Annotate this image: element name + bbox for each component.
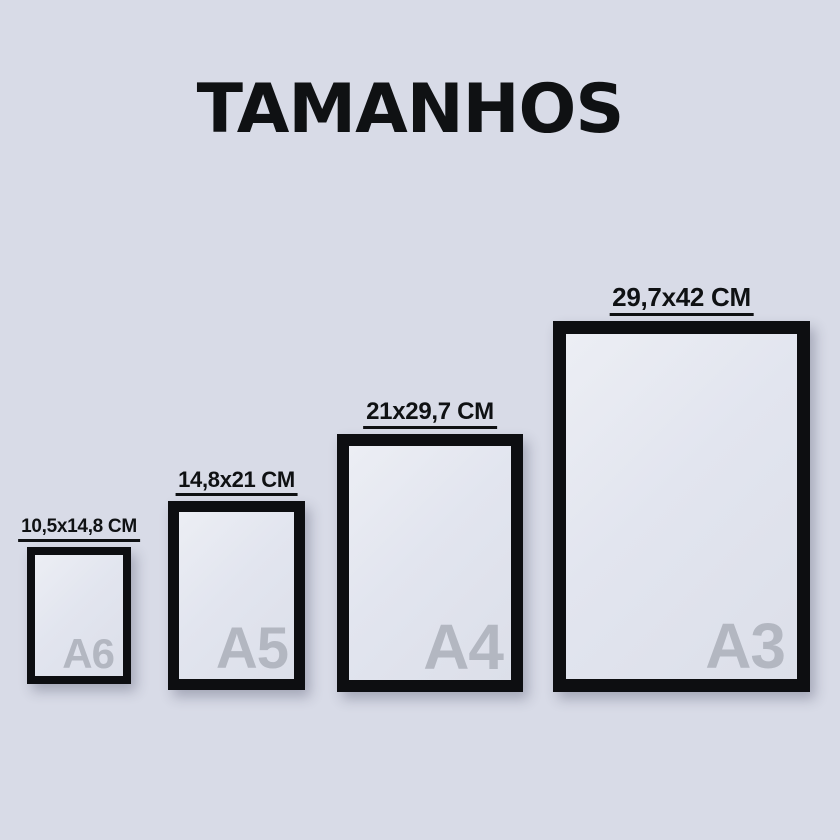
size-dimensions-a5: 14,8x21 CM [175, 468, 298, 496]
size-dimensions-a6: 10,5x14,8 CM [18, 517, 140, 542]
size-letter-a4: A4 [423, 615, 503, 679]
size-group-a3: 29,7x42 CM A3 [553, 321, 810, 692]
size-group-a4: 21x29,7 CM A4 [337, 434, 523, 692]
frame-a5: A5 [168, 501, 305, 690]
page-title: TAMANHOS [0, 76, 830, 144]
size-letter-a5: A5 [216, 620, 288, 678]
frame-a3: A3 [553, 321, 810, 692]
size-dimensions-a3: 29,7x42 CM [609, 284, 754, 316]
poster-sizes-diagram: TAMANHOS 10,5x14,8 CM A6 14,8x21 CM A5 2… [0, 0, 840, 840]
size-letter-a3: A3 [705, 614, 785, 678]
size-group-a5: 14,8x21 CM A5 [168, 501, 305, 690]
frame-a6: A6 [27, 547, 131, 684]
size-group-a6: 10,5x14,8 CM A6 [27, 547, 131, 684]
size-letter-a6: A6 [62, 633, 114, 675]
frame-a4: A4 [337, 434, 523, 692]
size-dimensions-a4: 21x29,7 CM [363, 399, 497, 429]
